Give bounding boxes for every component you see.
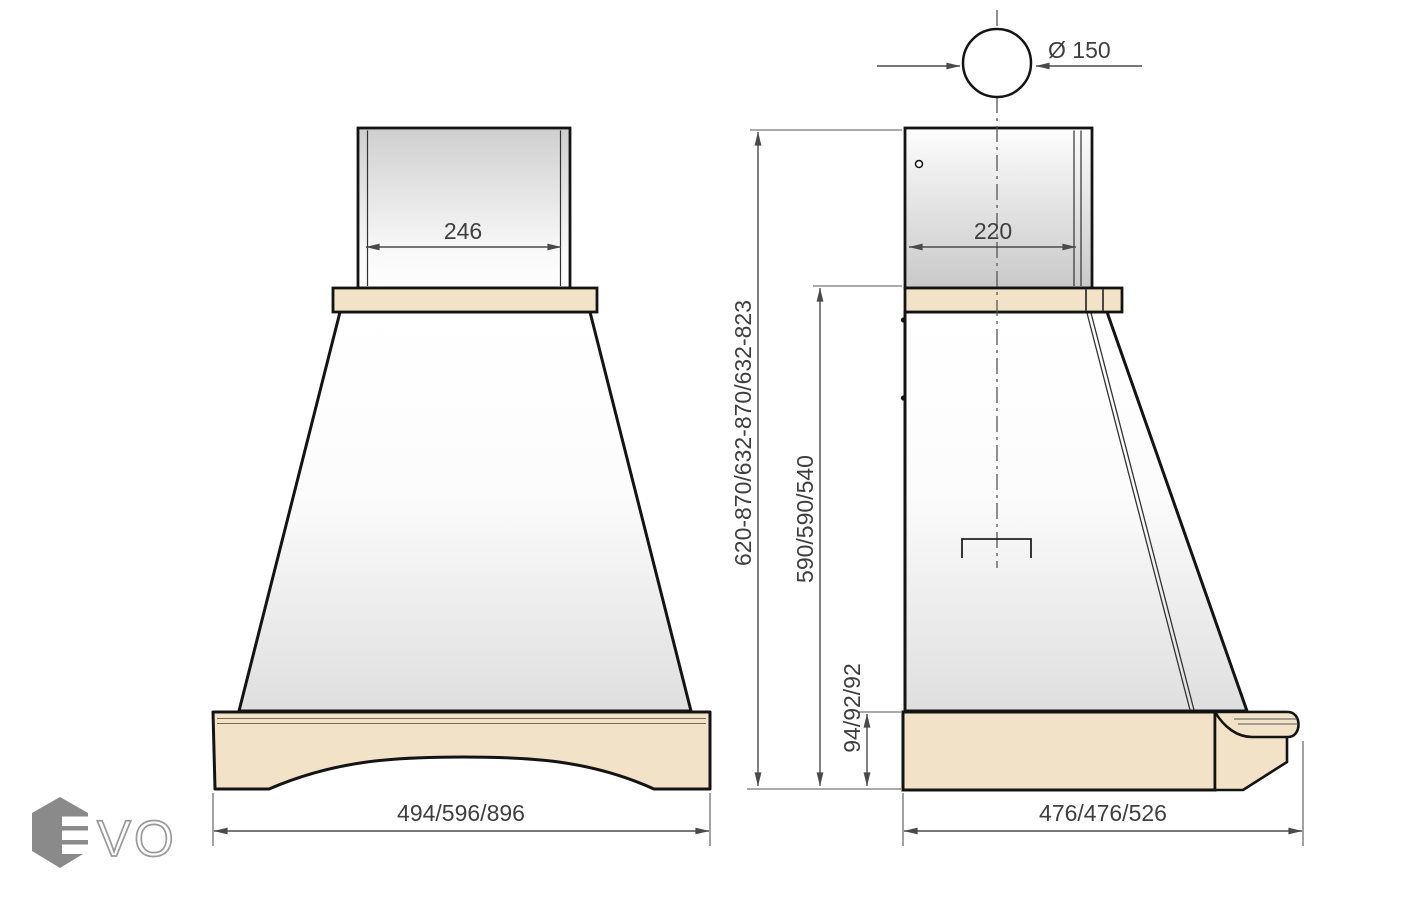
label-body-height: 590/590/540	[792, 455, 818, 583]
label-duct-diameter: Ø 150	[1048, 37, 1111, 63]
front-trim-bar	[333, 288, 597, 312]
logo-vo-letters: VO	[97, 810, 177, 867]
screw-hole	[916, 161, 923, 168]
label-side-depth: 476/476/526	[1039, 800, 1167, 826]
side-view	[901, 10, 1299, 790]
side-canopy-body	[905, 312, 1247, 711]
label-front-chimney-width: 246	[444, 218, 482, 244]
hood-dimension-drawing: 246 220 Ø 150 494/596/896 476/476/526 62…	[0, 0, 1414, 900]
drawing-canvas: 246 220 Ø 150 494/596/896 476/476/526 62…	[0, 0, 1414, 900]
label-front-width: 494/596/896	[397, 800, 525, 826]
label-total-height: 620-870/632-870/632-823	[730, 300, 756, 566]
side-base-panel	[903, 712, 1215, 790]
label-base-height: 94/92/92	[839, 663, 865, 753]
label-side-chimney-depth: 220	[974, 218, 1012, 244]
front-chimney	[358, 128, 570, 288]
side-trim-bar	[905, 288, 1122, 312]
wall-mount-stud	[901, 317, 906, 322]
front-canopy-body	[239, 312, 691, 711]
duct-outlet-circle	[963, 29, 1031, 97]
logo-e-bars	[62, 817, 93, 855]
evo-logo: VO	[32, 797, 177, 868]
side-chimney	[905, 128, 1092, 288]
wall-mount-stud	[901, 395, 906, 400]
